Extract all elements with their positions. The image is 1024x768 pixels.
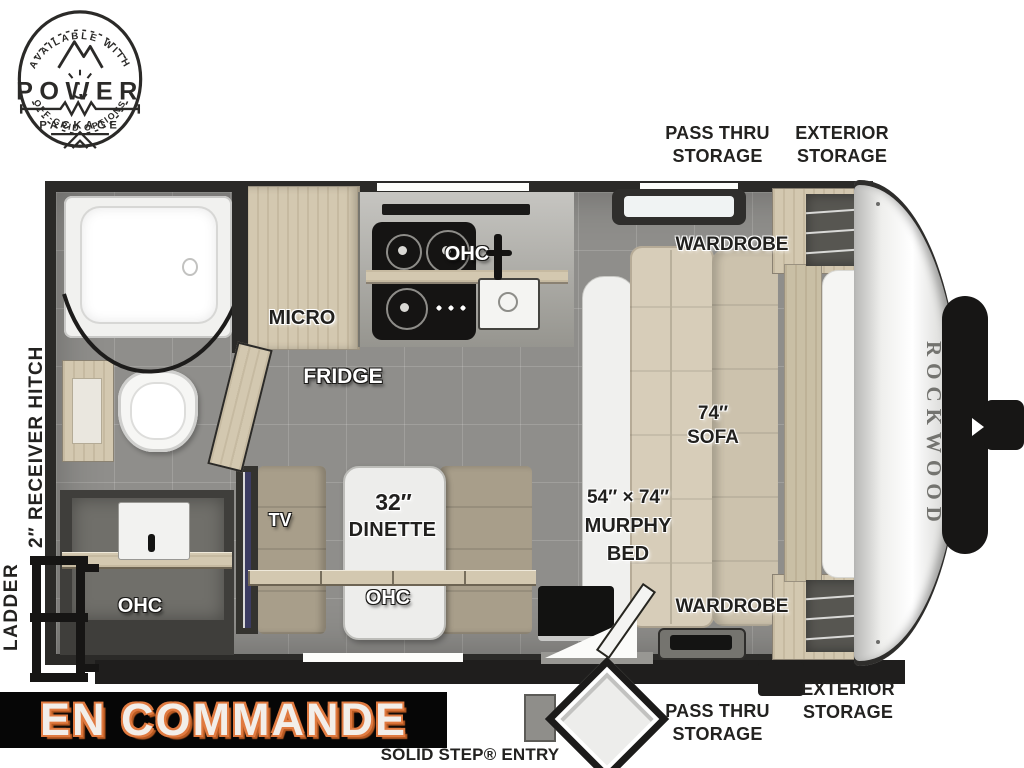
murphy-bed-panel [582,276,636,630]
dinette-bench-left [258,466,326,634]
window-bottom-dinette [303,653,463,662]
status-banner-text: EN COMMANDE [40,694,407,746]
label-fridge: FRIDGE [288,364,398,390]
ladder-rung [30,556,88,565]
label-pass-thru-storage-top: PASS THRU STORAGE [655,122,780,168]
label-dinette-size: 32″ [345,488,442,516]
dinette-bench-right [440,466,532,634]
dinette-ohc-shelf [248,570,536,586]
floor-vent-inner [670,635,732,650]
label-solid-step-entry: SOLID STEP® ENTRY [378,744,562,766]
ladder-mount [85,664,99,672]
badge-mountains-icon [59,42,103,68]
label-line: EXTERIOR [793,678,903,701]
label-kitchen-ohc: OHC [430,242,504,266]
rear-ladder [30,556,88,682]
bathtub-drain [182,258,198,276]
stove-knob-dots [434,304,468,312]
bathroom-wall [232,181,248,353]
label-line: STORAGE [793,701,903,724]
label-sofa-size: 74″ [683,402,743,425]
label-line: STORAGE [655,145,780,168]
bathroom-sink [118,502,190,560]
label-line: STORAGE [788,145,896,168]
range-hood [382,204,530,215]
ladder-rung [30,613,88,622]
label-murphy: MURPHY [568,514,688,538]
stove-burner-cap [400,303,409,312]
kitchen-sink-drain [498,292,518,312]
stove-burner-cap [398,246,407,255]
bathroom-sink-faucet [148,534,155,552]
label-murphy-bed: BED [568,542,688,566]
ladder-mount [85,564,99,572]
label-line: PASS THRU [655,122,780,145]
label-line: STORAGE [655,723,780,746]
label-sofa: SOFA [683,426,743,449]
label-line: EXTERIOR [788,122,896,145]
label-bath-ohc: OHC [100,594,180,618]
skylight-glass [624,196,734,217]
sofa-seat-seam [670,250,672,624]
label-tv: TV [258,510,302,532]
propane-tank-cover [984,400,1024,450]
murphy-bed-frame [784,264,822,582]
label-exterior-storage-bottom: EXTERIOR STORAGE [793,678,903,724]
label-micro: MICRO [252,306,352,330]
label-dinette-ohc: OHC [348,586,428,610]
label-wardrobe-top: WARDROBE [672,233,792,256]
cap-rivet [876,202,880,206]
window-top-kitchen [377,183,529,191]
power-package-badge: AVAILABLE WITH POWER PACKAGE OFF-GRID OP… [10,4,150,156]
label-murphy-size: 54″ × 74″ [568,486,688,509]
cap-rivet [876,640,880,644]
label-line: PASS THRU [655,700,780,723]
status-banner: EN COMMANDE [0,692,447,748]
label-pass-thru-storage-bottom: PASS THRU STORAGE [655,700,780,746]
tv-screen [243,472,251,628]
label-wardrobe-bottom: WARDROBE [672,595,792,618]
shower-curtain-rod [56,288,246,410]
ladder-rung [30,673,88,682]
label-receiver-hitch: 2″ RECEIVER HITCH [26,346,48,548]
label-dinette: DINETTE [343,518,442,542]
label-ladder: LADDER [1,563,23,651]
floorplan-page: AVAILABLE WITH POWER PACKAGE OFF-GRID OP… [0,0,1024,768]
label-exterior-storage-top: EXTERIOR STORAGE [788,122,896,168]
